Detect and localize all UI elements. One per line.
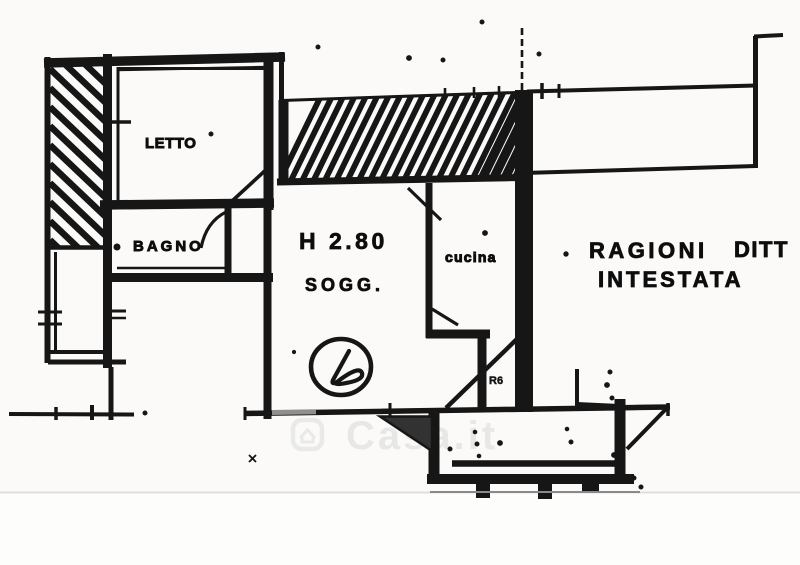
svg-text:SOGG.: SOGG. [305, 275, 384, 295]
svg-text:LETTO: LETTO [145, 135, 196, 152]
svg-text:H 2.80: H 2.80 [299, 228, 388, 254]
svg-text:DITT: DITT [734, 237, 789, 262]
svg-text:INTESTATA: INTESTATA [598, 267, 744, 292]
svg-text:BAGNO: BAGNO [133, 238, 204, 255]
svg-text:RAGIONI: RAGIONI [589, 238, 708, 263]
svg-text:R6: R6 [489, 375, 503, 387]
svg-text:cucina: cucina [445, 249, 497, 265]
